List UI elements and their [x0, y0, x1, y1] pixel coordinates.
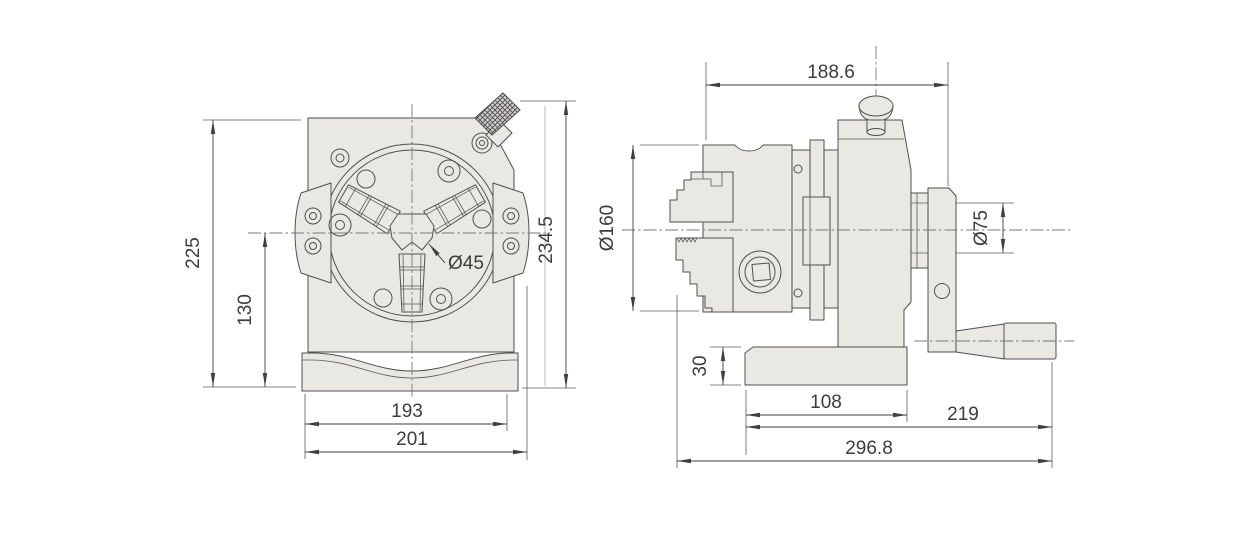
- dim-base-height: 30: [690, 347, 741, 385]
- front-body-width-label: 193: [391, 401, 423, 422]
- side-column: [838, 120, 911, 347]
- dim-center-height: 130: [235, 233, 265, 387]
- side-view: 188.6 Ø160 Ø75 30: [597, 46, 1074, 468]
- knob-cap: [859, 96, 893, 116]
- front-base-width-label: 201: [396, 429, 428, 450]
- front-overall-height-label: 225: [183, 237, 204, 269]
- front-center-height-label: 130: [235, 294, 256, 326]
- side-overall-length-label: 296.8: [845, 438, 893, 459]
- side-chuck-dia-label: Ø160: [597, 205, 618, 251]
- side-base: [745, 347, 907, 385]
- front-bore-label: Ø45: [448, 253, 484, 274]
- side-jaw-lower: [676, 238, 733, 312]
- handle-taper: [956, 324, 1004, 359]
- crank-arm: [928, 188, 956, 352]
- dim-chuck-dia: Ø160: [597, 145, 699, 311]
- front-total-height-label: 234.5: [536, 216, 557, 264]
- dividing-head-drawing: 225 130 234.5 Ø45 193: [0, 0, 1240, 539]
- side-base-length-label: 108: [810, 392, 842, 413]
- spindle-bearing-boss: [911, 193, 928, 268]
- side-body-length-label: 188.6: [807, 62, 855, 83]
- plunger-stem-base: [867, 129, 885, 136]
- dim-spindle-boss-dia: Ø75: [956, 203, 1014, 253]
- side-base-height-label: 30: [690, 355, 711, 376]
- front-view: 225 130 234.5 Ø45 193: [183, 93, 576, 460]
- dim-overall-height: 225: [183, 120, 301, 387]
- side-jaw-upper: [670, 172, 733, 222]
- front-base: [302, 353, 518, 391]
- technical-drawing-page: 225 130 234.5 Ø45 193: [0, 0, 1240, 539]
- side-spindle-dia-label: Ø75: [971, 210, 992, 246]
- side-handle-length-label: 219: [947, 404, 979, 425]
- clamp-block: [803, 197, 830, 265]
